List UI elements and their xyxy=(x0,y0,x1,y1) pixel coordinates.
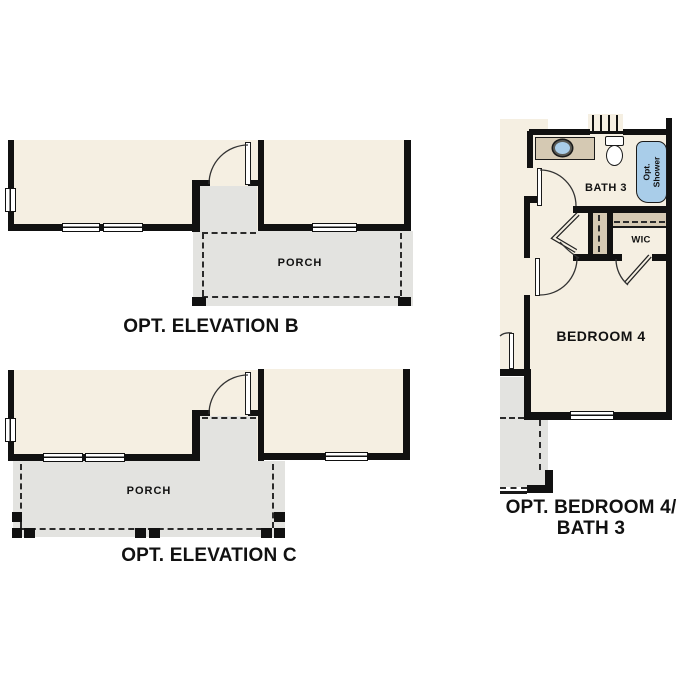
bedroom-door-leaf xyxy=(535,258,540,296)
porch-post xyxy=(12,512,22,522)
floorplan-sheet: PORCH OPT. ELEVATION B xyxy=(0,0,687,687)
chase xyxy=(593,213,607,254)
window xyxy=(325,452,368,461)
wall-segment xyxy=(573,206,666,213)
wall-segment xyxy=(524,376,531,416)
wall-segment xyxy=(404,140,411,231)
porch-dashed-edge xyxy=(202,417,256,419)
chase-dashed-line xyxy=(598,215,600,252)
wall-segment xyxy=(524,196,538,203)
plan-title: OPT. ELEVATION C xyxy=(121,545,297,567)
porch-post xyxy=(12,528,22,538)
porch-post xyxy=(398,297,411,306)
wall-segment xyxy=(258,140,264,231)
porch-label: PORCH xyxy=(278,257,323,269)
porch-dashed-edge xyxy=(500,417,524,419)
porch-dashed-edge xyxy=(202,232,256,234)
porch-post xyxy=(274,528,285,538)
porch-dashed-edge xyxy=(400,233,402,296)
porch-dashed-edge xyxy=(500,487,527,489)
plan-title-line1: OPT. BEDROOM 4/ xyxy=(506,497,677,518)
wall-segment xyxy=(524,203,530,258)
toilet-icon xyxy=(606,145,623,166)
hall-door-leaf xyxy=(509,333,514,369)
porch-floor xyxy=(13,461,285,537)
stair-tread-line xyxy=(589,131,623,134)
bath-door-leaf xyxy=(537,168,542,206)
wic-label: WIC xyxy=(631,235,650,246)
window xyxy=(312,223,357,232)
window xyxy=(62,223,100,232)
wall-segment xyxy=(607,213,613,254)
entry-alcove-floor xyxy=(200,186,257,231)
porch-post xyxy=(527,485,553,493)
porch-dashed-edge xyxy=(539,420,541,470)
porch-floor xyxy=(500,377,525,417)
porch-post xyxy=(135,528,146,538)
window xyxy=(85,453,125,462)
entry-door-leaf xyxy=(245,372,251,415)
wall-segment xyxy=(652,254,666,261)
porch-post xyxy=(192,297,206,306)
wall-segment xyxy=(8,224,196,231)
porch-label: PORCH xyxy=(127,485,172,497)
wall-segment xyxy=(500,369,531,376)
stair-line xyxy=(608,115,610,132)
porch-dashed-edge xyxy=(20,528,272,530)
bath-label: BATH 3 xyxy=(585,182,627,194)
wall-segment xyxy=(258,369,264,461)
wall-segment xyxy=(8,140,14,231)
entry-alcove-floor xyxy=(200,416,257,461)
wall-segment xyxy=(192,410,200,461)
window xyxy=(5,188,16,212)
wall-segment xyxy=(200,410,210,416)
wall-segment xyxy=(524,295,530,369)
porch-post xyxy=(274,512,285,522)
room-floor xyxy=(264,140,404,230)
optional-shower: Opt.Shower xyxy=(636,141,667,203)
wall-segment xyxy=(200,180,210,186)
shower-label: Opt.Shower xyxy=(642,157,661,188)
stair-line xyxy=(616,115,618,132)
closet-shelf xyxy=(613,213,666,227)
porch-edge-line xyxy=(500,491,527,494)
plan-title: OPT. ELEVATION B xyxy=(123,316,299,338)
window xyxy=(43,453,83,462)
porch-post xyxy=(24,528,35,538)
porch-dashed-edge xyxy=(202,233,204,296)
wall-segment xyxy=(403,369,410,460)
stair-line xyxy=(600,115,602,132)
stair-line xyxy=(592,115,594,132)
wall-segment xyxy=(8,370,14,459)
wall-segment xyxy=(527,131,533,168)
porch-post xyxy=(149,528,160,538)
wall-segment xyxy=(529,129,590,135)
wall-segment xyxy=(623,129,672,135)
bedroom-label: BEDROOM 4 xyxy=(556,328,645,344)
sink-icon xyxy=(553,140,572,156)
window xyxy=(570,411,614,420)
wall-segment xyxy=(588,213,593,254)
wall-segment xyxy=(573,254,622,261)
closet-rod-dashed-line xyxy=(614,221,665,223)
window xyxy=(5,418,16,442)
entry-door-leaf xyxy=(245,142,251,185)
wall-segment xyxy=(192,180,200,232)
plan-title-line2: BATH 3 xyxy=(506,518,677,539)
room-floor xyxy=(264,369,403,455)
window xyxy=(103,223,143,232)
porch-dashed-edge xyxy=(202,296,400,298)
plan-title: OPT. BEDROOM 4/ BATH 3 xyxy=(506,497,677,539)
closet-shelf-edge xyxy=(613,226,666,228)
porch-post xyxy=(261,528,272,538)
